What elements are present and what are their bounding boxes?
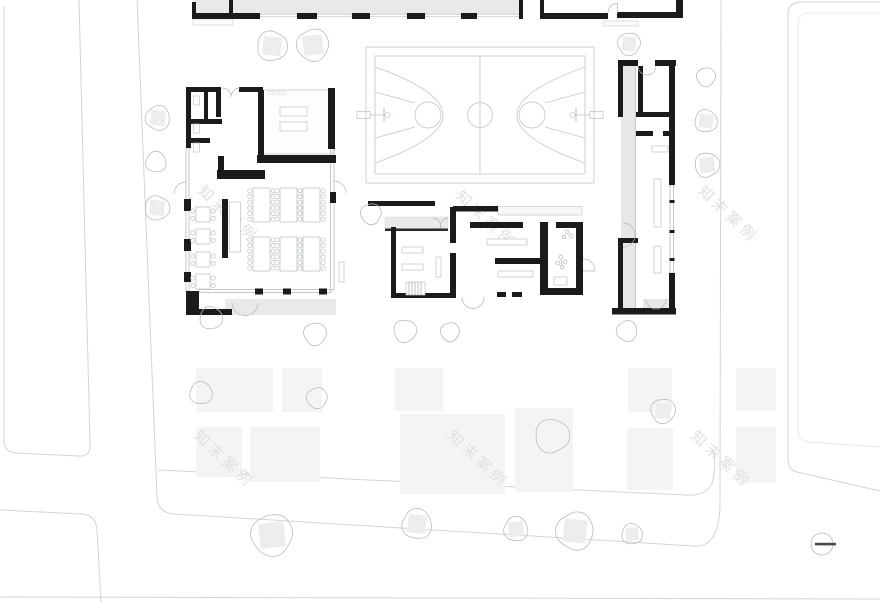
staircase — [406, 282, 425, 295]
north-building — [192, 0, 683, 26]
dining-table — [280, 188, 297, 222]
tree-icon — [618, 33, 641, 56]
tree-icon — [695, 153, 720, 177]
dining-table — [303, 237, 320, 271]
bench — [339, 262, 344, 282]
dining-table — [253, 188, 270, 222]
plant-icon — [562, 230, 573, 239]
paving-patch — [282, 368, 322, 412]
site-plan-drawing: 知末案例知末案例知末案例知末案例知末案例知末案例 — [0, 0, 880, 602]
dining-table-small — [196, 207, 210, 222]
dining-table — [253, 237, 270, 271]
watermark-text: 知末案例 — [694, 182, 762, 247]
site-roads — [0, 0, 880, 602]
entrance-door-swing-icon — [222, 88, 240, 97]
tree-icon — [145, 105, 169, 130]
east-building — [612, 60, 676, 315]
dining-table — [303, 188, 320, 222]
basketball-hoop-icon — [357, 108, 390, 122]
tree-icon — [258, 31, 288, 61]
east-door-swing-icon — [583, 259, 595, 271]
tree-icon — [296, 29, 328, 62]
paving-patch — [250, 427, 320, 482]
tree-icon — [304, 323, 327, 346]
tree-icon — [146, 196, 170, 220]
paving-patch — [395, 368, 443, 411]
serving-counter — [230, 202, 241, 252]
dining-hall-building — [174, 87, 346, 316]
canopy — [498, 207, 582, 216]
tree-icon — [440, 323, 459, 342]
dining-table-small — [196, 229, 210, 244]
tree-icon — [622, 523, 643, 543]
tree-icon — [695, 109, 717, 131]
tree-icon — [504, 516, 528, 540]
door-swing-icon — [608, 4, 618, 14]
dining-table-small — [196, 274, 210, 289]
tree-icon — [360, 204, 381, 225]
tree-icon — [696, 68, 715, 87]
survey-marker-icon — [811, 533, 836, 555]
dining-table — [280, 237, 297, 271]
tree-icon — [146, 151, 166, 172]
plant-icon — [556, 255, 567, 269]
basketball-hoop-icon — [570, 108, 603, 122]
south-door-swing-icon — [462, 297, 484, 309]
dining-table-small — [196, 252, 210, 267]
tree-icon — [402, 508, 432, 538]
basketball-court — [357, 47, 603, 183]
tree-icon — [555, 512, 593, 550]
paving-patch — [736, 368, 776, 411]
site-plan-canvas: 知末案例知末案例知末案例知末案例知末案例知末案例 — [0, 0, 880, 602]
paving-patch — [627, 428, 673, 490]
paving-patch — [196, 368, 273, 412]
tree-icon — [394, 320, 417, 342]
tree-icon — [616, 320, 637, 341]
paving-patch — [400, 414, 505, 494]
